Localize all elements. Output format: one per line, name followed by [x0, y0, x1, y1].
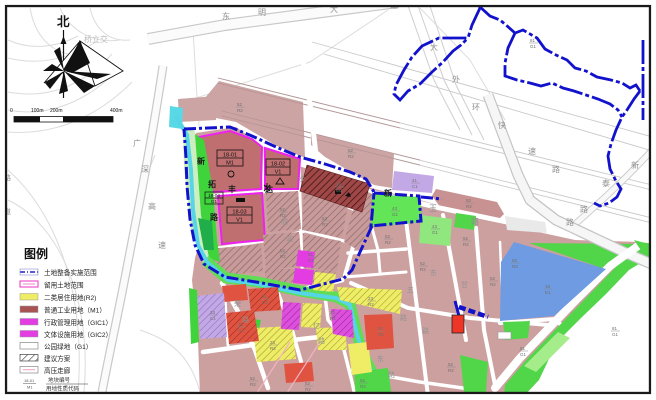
svg-text:路: 路	[471, 216, 479, 226]
svg-text:速: 速	[528, 147, 536, 156]
svg-text:公园绿地（G1）: 公园绿地（G1）	[44, 342, 92, 351]
svg-text:18: 18	[336, 182, 342, 187]
svg-text:33: 33	[210, 310, 216, 315]
svg-text:新: 新	[631, 160, 639, 170]
svg-text:200m: 200m	[50, 108, 63, 114]
svg-text:G1: G1	[211, 199, 218, 204]
svg-text:路: 路	[580, 204, 588, 214]
svg-text:R2: R2	[237, 108, 243, 113]
svg-text:52: 52	[466, 198, 472, 203]
svg-text:站: 站	[286, 234, 293, 243]
svg-text:地块编号: 地块编号	[48, 376, 71, 384]
svg-text:23: 23	[330, 310, 336, 315]
svg-text:G1: G1	[530, 44, 537, 49]
svg-text:R2: R2	[360, 384, 366, 389]
svg-text:R2: R2	[280, 254, 286, 259]
svg-text:G1: G1	[392, 212, 399, 217]
svg-text:21: 21	[238, 322, 244, 327]
svg-text:81: 81	[612, 326, 618, 331]
svg-text:23: 23	[368, 296, 374, 301]
svg-text:R2: R2	[250, 382, 256, 387]
svg-text:G1: G1	[612, 332, 619, 337]
svg-text:二类居住用地(R2): 二类居住用地(R2)	[44, 293, 96, 302]
svg-text:C1: C1	[262, 300, 268, 305]
svg-text:高压走廊: 高压走廊	[44, 366, 71, 375]
svg-text:52: 52	[280, 207, 286, 212]
svg-text:18-02: 18-02	[271, 162, 285, 168]
svg-text:土地整备实施范围: 土地整备实施范围	[44, 268, 97, 277]
svg-text:C1: C1	[412, 184, 418, 189]
svg-text:路: 路	[210, 212, 219, 222]
svg-text:建议方案: 建议方案	[44, 354, 71, 363]
svg-text:路: 路	[422, 326, 429, 335]
svg-text:V1: V1	[275, 170, 282, 176]
svg-text:81: 81	[308, 252, 314, 257]
svg-text:52: 52	[360, 378, 366, 383]
svg-text:路: 路	[242, 315, 249, 324]
svg-text:环: 环	[472, 103, 480, 112]
svg-text:18-01: 18-01	[223, 153, 237, 159]
svg-text:21: 21	[262, 294, 268, 299]
svg-text:R2: R2	[368, 302, 374, 307]
svg-text:M1: M1	[336, 188, 343, 193]
svg-text:东: 东	[430, 268, 437, 277]
svg-text:路: 路	[552, 164, 560, 174]
svg-text:52: 52	[448, 362, 454, 367]
svg-text:快: 快	[498, 120, 506, 130]
svg-text:43: 43	[432, 224, 438, 229]
svg-text:C1: C1	[238, 328, 244, 333]
svg-text:行政管理用地（GIC1）: 行政管理用地（GIC1）	[44, 318, 112, 327]
svg-text:东: 东	[377, 354, 384, 363]
svg-text:81: 81	[520, 346, 526, 351]
svg-text:R2: R2	[420, 267, 426, 272]
svg-text:泰: 泰	[602, 178, 610, 188]
svg-text:高: 高	[148, 201, 156, 211]
svg-text:0: 0	[10, 108, 13, 114]
svg-text:R2: R2	[270, 346, 276, 351]
svg-text:普通工业用地（M1）: 普通工业用地（M1）	[44, 306, 106, 315]
svg-text:图例: 图例	[24, 246, 48, 261]
svg-text:52: 52	[490, 276, 496, 281]
svg-text:52: 52	[237, 102, 243, 107]
svg-text:桥立交: 桥立交	[84, 34, 108, 44]
svg-text:52: 52	[378, 326, 384, 331]
svg-text:路: 路	[566, 217, 574, 227]
svg-text:52: 52	[463, 236, 469, 241]
svg-text:路: 路	[388, 370, 395, 379]
svg-text:52: 52	[280, 248, 286, 253]
svg-text:52: 52	[348, 148, 354, 153]
svg-text:81: 81	[530, 38, 536, 43]
svg-text:43: 43	[392, 206, 398, 211]
svg-text:文体设施用地（GIC2）: 文体设施用地（GIC2）	[44, 330, 112, 339]
svg-text:R2: R2	[466, 204, 472, 209]
svg-text:23: 23	[270, 340, 276, 345]
svg-text:18-01: 18-01	[24, 378, 35, 383]
svg-text:东: 东	[222, 11, 230, 21]
svg-text:沙: 沙	[298, 175, 305, 183]
svg-text:丰: 丰	[228, 184, 236, 194]
svg-text:G1: G1	[432, 230, 439, 235]
svg-text:R2: R2	[490, 282, 496, 287]
svg-text:用地性质代码: 用地性质代码	[46, 385, 80, 393]
svg-text:欣: 欣	[281, 217, 288, 226]
svg-text:C1: C1	[210, 316, 216, 321]
svg-text:留用土地范围: 留用土地范围	[44, 281, 84, 290]
svg-text:18: 18	[545, 284, 551, 289]
svg-text:M1: M1	[226, 161, 234, 167]
svg-text:41: 41	[412, 178, 418, 183]
svg-text:R2: R2	[463, 242, 469, 247]
svg-text:R2: R2	[448, 368, 454, 373]
svg-text:E1: E1	[545, 290, 551, 295]
svg-text:400m: 400m	[110, 108, 123, 114]
svg-text:52: 52	[305, 381, 311, 386]
svg-text:100m: 100m	[31, 108, 44, 114]
svg-text:大: 大	[430, 42, 438, 52]
svg-text:玉: 玉	[429, 204, 437, 213]
svg-text:R2: R2	[305, 387, 311, 392]
svg-text:深: 深	[141, 165, 149, 174]
svg-text:G1: G1	[520, 352, 527, 357]
svg-text:达: 达	[265, 184, 273, 194]
svg-text:亿: 亿	[313, 321, 320, 330]
svg-text:路: 路	[318, 336, 325, 345]
svg-text:新: 新	[384, 188, 392, 198]
svg-text:广: 广	[133, 138, 141, 148]
svg-text:R2: R2	[385, 240, 391, 245]
svg-text:速: 速	[158, 241, 166, 250]
svg-text:52: 52	[385, 234, 391, 239]
svg-text:R2: R2	[322, 222, 328, 227]
svg-text:明: 明	[258, 8, 266, 17]
svg-text:R2: R2	[330, 316, 336, 321]
svg-text:新: 新	[197, 156, 205, 166]
svg-text:荣: 荣	[234, 299, 241, 308]
svg-text:M1: M1	[27, 385, 33, 390]
svg-text:路: 路	[400, 313, 407, 322]
svg-text:外: 外	[452, 74, 460, 84]
svg-text:五: 五	[407, 286, 414, 294]
svg-text:18-04: 18-04	[208, 193, 220, 198]
svg-text:R2: R2	[512, 264, 518, 269]
svg-text:甘: 甘	[461, 280, 468, 289]
svg-text:R2: R2	[348, 154, 354, 159]
svg-text:52: 52	[420, 261, 426, 266]
svg-text:52: 52	[250, 376, 256, 381]
svg-text:52: 52	[512, 258, 518, 263]
svg-text:G1: G1	[308, 258, 315, 263]
svg-text:R2: R2	[280, 213, 286, 218]
svg-text:R2: R2	[378, 332, 384, 337]
svg-text:52: 52	[322, 216, 328, 221]
svg-text:北: 北	[57, 14, 70, 29]
svg-text:18-03: 18-03	[232, 210, 246, 216]
svg-text:V1: V1	[236, 218, 243, 224]
svg-text:拓: 拓	[208, 179, 216, 189]
